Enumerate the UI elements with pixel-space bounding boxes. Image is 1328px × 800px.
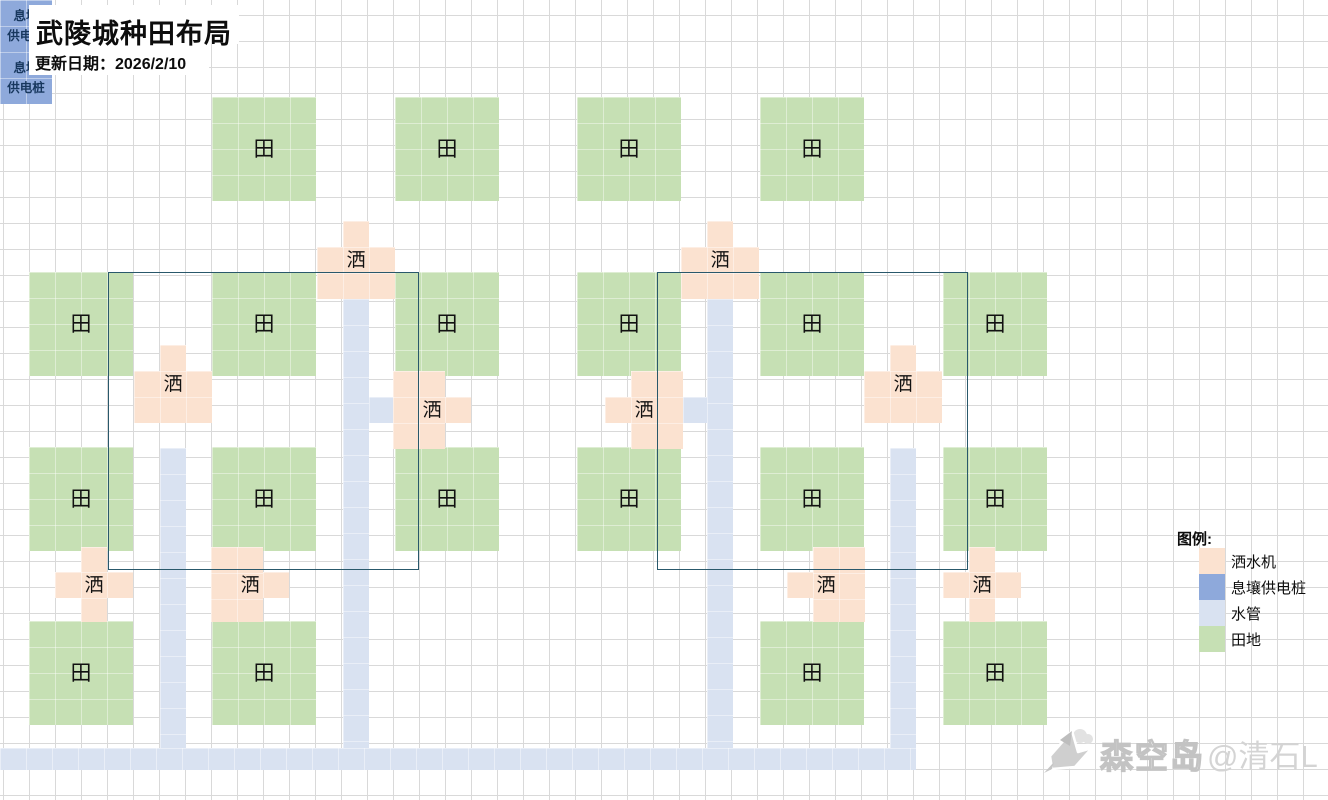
- field-block: 田: [395, 97, 499, 201]
- sprinkler-block: [81, 547, 107, 572]
- sprinkler-block: [343, 221, 369, 247]
- field-label: 田: [985, 663, 1006, 684]
- sprinkler-block: [445, 397, 471, 423]
- sprinkler-block: [787, 572, 813, 598]
- field-label: 田: [802, 139, 823, 160]
- field-label: 田: [619, 489, 640, 510]
- watermark-brand: 森空岛: [1100, 730, 1205, 778]
- legend: 图例: 洒水机息壤供电桩水管田地: [1167, 528, 1212, 553]
- field-label: 田: [802, 663, 823, 684]
- field-label: 田: [985, 314, 1006, 335]
- sprinkler-block: [605, 397, 631, 423]
- legend-label: 水管: [1231, 603, 1261, 624]
- field-block: 田: [760, 97, 864, 201]
- water-pipe-segment: [0, 748, 916, 770]
- legend-item: 洒水机: [1199, 548, 1276, 574]
- sprinkler-block: [81, 598, 107, 622]
- sprinkler-label: 洒: [343, 247, 369, 273]
- field-label: 田: [619, 139, 640, 160]
- legend-swatch: [1199, 548, 1225, 574]
- sprinkler-label: 洒: [237, 572, 263, 598]
- sprinkler-block: [263, 572, 289, 598]
- legend-swatch: [1199, 574, 1225, 600]
- legend-label: 田地: [1231, 629, 1261, 650]
- update-date: 更新日期：2026/2/10: [35, 50, 186, 74]
- field-label: 田: [71, 489, 92, 510]
- legend-swatch: [1199, 600, 1225, 626]
- sprinkler-block: [707, 221, 733, 247]
- field-label: 田: [985, 489, 1006, 510]
- field-label: 田: [619, 314, 640, 335]
- legend-item: 田地: [1199, 626, 1261, 652]
- legend-label: 息壤供电桩: [1231, 577, 1306, 598]
- legend-item: 息壤供电桩: [1199, 574, 1306, 600]
- group-outline: [108, 272, 419, 570]
- farm-layout-diagram: 武陵城种田布局 更新日期：2026/2/10 图例: 洒水机息壤供电桩水管田地 …: [0, 0, 1328, 800]
- group-outline: [657, 272, 968, 570]
- sprinkler-block: [969, 547, 995, 572]
- field-label: 田: [437, 139, 458, 160]
- field-label: 田: [437, 489, 458, 510]
- field-block: 田: [577, 97, 681, 201]
- page-title: 武陵城种田布局: [36, 12, 232, 51]
- sprinkler-label: 洒: [631, 397, 657, 423]
- sprinkler-label: 洒: [969, 572, 995, 598]
- field-label: 田: [254, 663, 275, 684]
- field-label: 田: [437, 314, 458, 335]
- field-label: 田: [71, 663, 92, 684]
- sprinkler-label: 洒: [419, 397, 445, 423]
- sprinkler-label: 洒: [813, 572, 839, 598]
- legend-label: 洒水机: [1231, 551, 1276, 572]
- legend-swatch: [1199, 626, 1225, 652]
- field-block: 田: [212, 621, 316, 725]
- legend-item: 水管: [1199, 600, 1261, 626]
- field-block: 田: [760, 621, 864, 725]
- sprinkler-label: 洒: [707, 247, 733, 273]
- watermark: 森空岛 @清石L: [1040, 726, 1318, 781]
- field-block: 田: [29, 621, 133, 725]
- field-label: 田: [71, 314, 92, 335]
- bird-logo-icon: [1040, 726, 1096, 781]
- field-block: 田: [212, 97, 316, 201]
- sprinkler-label: 洒: [81, 572, 107, 598]
- power-pile-label: 供电桩: [7, 78, 45, 98]
- watermark-author: @清石L: [1207, 731, 1318, 776]
- legend-heading: 图例:: [1177, 528, 1212, 549]
- field-block: 田: [943, 621, 1047, 725]
- field-label: 田: [254, 139, 275, 160]
- sprinkler-block: [969, 598, 995, 622]
